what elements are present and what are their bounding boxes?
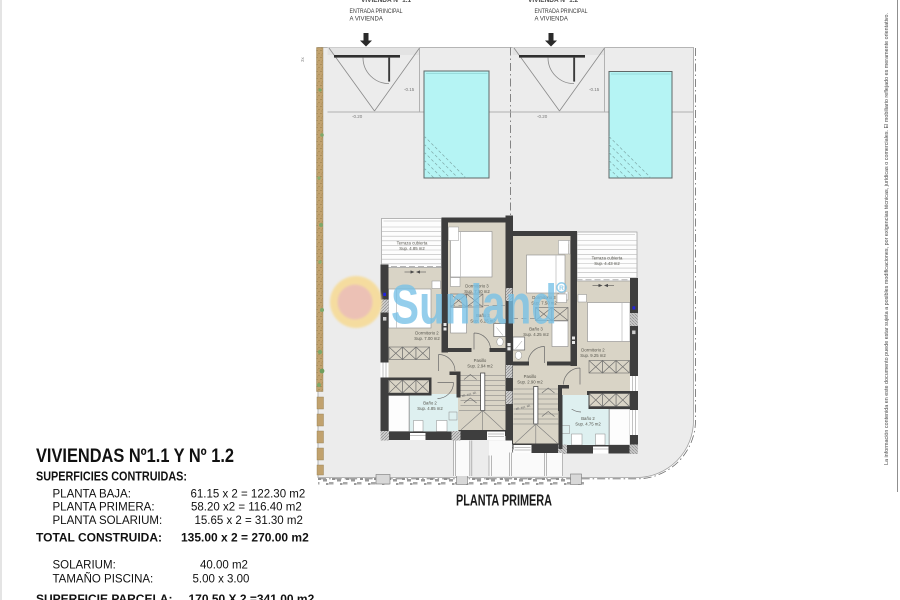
svg-text:VIVIENDA Nº 1.2: VIVIENDA Nº 1.2 — [528, 0, 579, 4]
svg-text:Pasillo: Pasillo — [524, 374, 537, 379]
svg-text:Sup. 2.90 m2: Sup. 2.90 m2 — [517, 380, 543, 385]
svg-text:TOTAL CONSTRUIDA:: TOTAL CONSTRUIDA: — [36, 531, 162, 545]
svg-text:Sup. 2.94 m2: Sup. 2.94 m2 — [467, 364, 493, 369]
svg-text:Sup. 4.85 m2: Sup. 4.85 m2 — [417, 406, 443, 411]
svg-text:61.15 x 2 = 122.30 m2: 61.15 x 2 = 122.30 m2 — [191, 489, 306, 501]
svg-text:SUPERFICIES CONTRUIDAS:: SUPERFICIES CONTRUIDAS: — [36, 469, 187, 484]
svg-text:Terraza cubierta: Terraza cubierta — [397, 241, 428, 246]
svg-text:Sup. 4.75 m2: Sup. 4.75 m2 — [575, 422, 601, 427]
svg-text:Dormitorio 2: Dormitorio 2 — [581, 348, 605, 353]
svg-text:-0.20: -0.20 — [352, 114, 363, 119]
svg-text:Terraza cubierta: Terraza cubierta — [592, 256, 623, 261]
svg-text:170.50 X 2 =341.00 m2: 170.50 X 2 =341.00 m2 — [189, 592, 315, 600]
svg-text:A VIVIENDA: A VIVIENDA — [350, 17, 383, 23]
svg-text:-0.20: -0.20 — [537, 114, 548, 119]
svg-text:VIVIENDA Nº 1.1: VIVIENDA Nº 1.1 — [361, 0, 412, 4]
svg-text:Sup. 4.43 m2: Sup. 4.43 m2 — [594, 261, 620, 266]
svg-text:PLANTA BAJA:: PLANTA BAJA: — [53, 489, 131, 501]
svg-text:15.65 x 2 = 31.30 m2: 15.65 x 2 = 31.30 m2 — [195, 515, 303, 527]
svg-text:Pasillo: Pasillo — [474, 358, 487, 363]
svg-text:Baño 2: Baño 2 — [423, 401, 437, 406]
svg-text:58.20 x2 = 116.40 m2: 58.20 x2 = 116.40 m2 — [191, 502, 302, 514]
svg-text:5.00 x 3.00: 5.00 x 3.00 — [193, 573, 250, 585]
svg-text:SOLARIUM:: SOLARIUM: — [53, 559, 116, 571]
svg-text:Sup. 4.85 m2: Sup. 4.85 m2 — [399, 246, 425, 251]
svg-text:ENTRADA PRINCIPAL: ENTRADA PRINCIPAL — [350, 9, 404, 15]
svg-text:A VIVIENDA: A VIVIENDA — [535, 17, 568, 23]
svg-text:ENTRADA PRINCIPAL: ENTRADA PRINCIPAL — [535, 9, 589, 15]
svg-text:40.00 m2: 40.00 m2 — [200, 559, 248, 571]
svg-text:SUPERFICIE PARCELA:: SUPERFICIE PARCELA: — [36, 592, 172, 600]
svg-text:3x: 3x — [300, 56, 305, 62]
svg-text:Sup. 7.00 m2: Sup. 7.00 m2 — [414, 336, 440, 341]
svg-text:Sup. 9.25 m2: Sup. 9.25 m2 — [580, 353, 606, 358]
svg-text:135.00 x 2 = 270.00 m2: 135.00 x 2 = 270.00 m2 — [181, 531, 309, 545]
svg-text:VIVIENDAS Nº1.1 Y Nº 1.2: VIVIENDAS Nº1.1 Y Nº 1.2 — [36, 446, 234, 467]
svg-text:PLANTA SOLARIUM:: PLANTA SOLARIUM: — [53, 515, 163, 527]
svg-text:R: R — [559, 285, 564, 292]
svg-text:PLANTA PRIMERA: PLANTA PRIMERA — [456, 493, 552, 510]
svg-text:-0.15: -0.15 — [404, 87, 415, 92]
svg-text:La información contenida en es: La información contenida en este documen… — [884, 13, 890, 465]
svg-text:Baño 2: Baño 2 — [581, 416, 595, 421]
svg-text:Sunland: Sunland — [391, 273, 557, 336]
svg-text:PLANTA PRIMERA:: PLANTA PRIMERA: — [53, 502, 155, 514]
svg-text:-0.15: -0.15 — [589, 87, 600, 92]
svg-text:TAMAÑO PISCINA:: TAMAÑO PISCINA: — [53, 572, 154, 585]
